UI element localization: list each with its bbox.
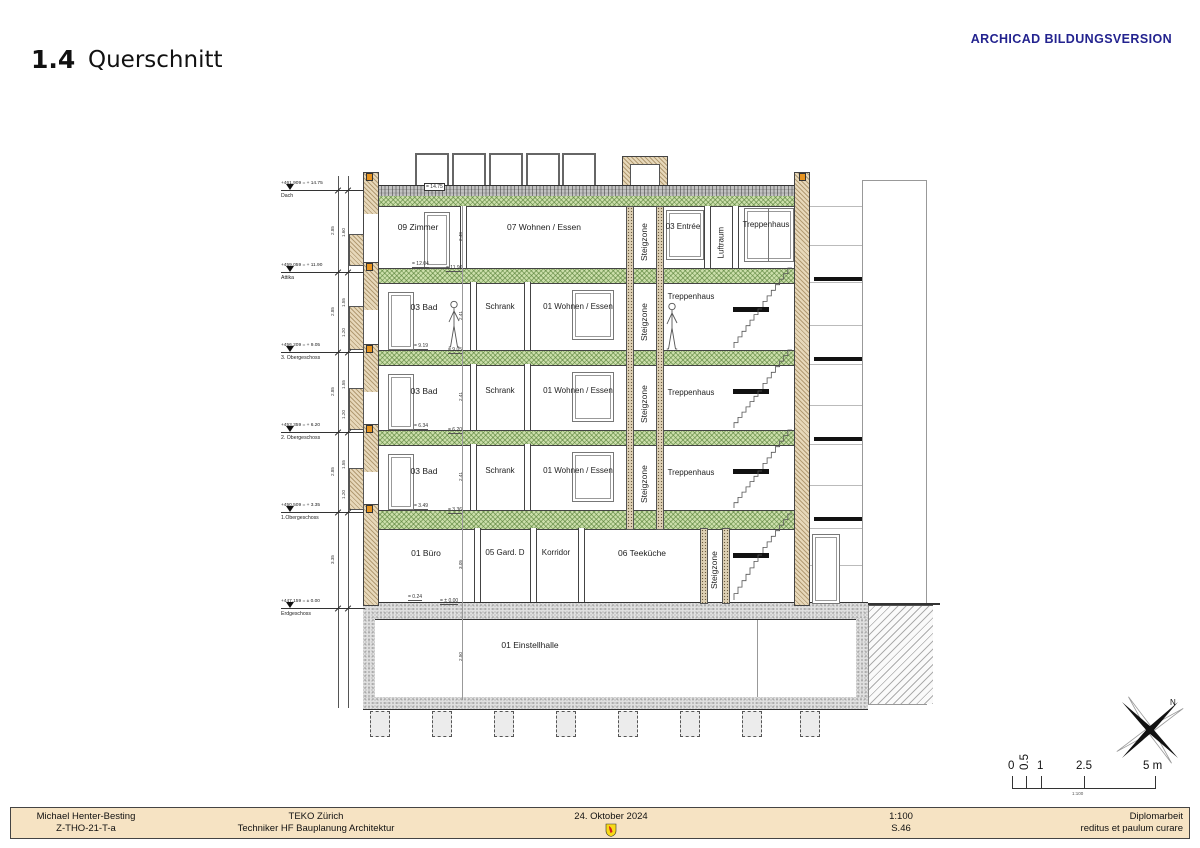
partition-wall [732,206,739,268]
dim-value: 2.85 [330,307,335,316]
dim-value: 1.55 [341,380,346,389]
dim-value: 1.60 [341,228,346,237]
roof-elevation-mark: = 14.75 [424,183,445,191]
room-label: Korridor [533,548,579,557]
roof-skylight [489,153,523,189]
level-name: Erdgeschoss [281,611,311,617]
left-wall-window [363,392,379,424]
foundation-pile [742,711,762,737]
dim-value: 1.20 [341,328,346,337]
door [388,292,414,350]
slab-mark: = ± 0.00 [440,598,458,605]
slab-mark: = 3.36 [448,507,462,514]
slab-mark: = 6.34 [414,423,428,430]
slab-mark: = 0.24 [408,594,422,601]
foundation-pile [618,711,638,737]
room-label: 03 Entrée [660,222,706,231]
shaft-wall [656,206,664,530]
level-name: Attika [281,275,294,281]
left-wall-window [363,310,379,344]
dim-value: 2.48 [458,232,463,241]
level-line [281,190,363,191]
footer-scale: 1:100 [831,811,971,823]
footer-program: Techniker HF Bauplanung Architektur [201,823,431,835]
background-floor-line [808,364,862,365]
shaft-wall [700,528,708,604]
level-name: 2. Obergeschoss [281,435,320,441]
foundation-pile [680,711,700,737]
dim-value: 1.20 [341,410,346,419]
footer-school: TEKO Zürich [201,811,431,823]
room-label: Steigzone [639,213,649,261]
room-label: Treppenhaus [662,388,720,397]
section-drawing: = 14.75 [0,0,1200,800]
window [666,210,704,260]
scale-tick [1084,776,1085,788]
room-label: 07 Wohnen / Essen [464,222,624,232]
room-label: 06 Teeküche [584,548,700,558]
scale-tick [1012,776,1013,788]
earth-hatch [868,604,933,704]
level-name: Dach [281,193,293,199]
dimension-chain [338,176,339,708]
partition-wall [474,528,481,602]
door [388,374,414,430]
room-label: Luftraum [717,215,726,259]
partition-wall [524,364,531,430]
scale-ratio: 1:100 [1072,791,1083,796]
left-wall [363,504,379,606]
window-frame-accent [366,425,373,433]
dim-value: 1.20 [341,490,346,499]
room-label: Treppenhaus [662,468,720,477]
background-floor-line [808,444,862,445]
window-frame-accent [799,173,806,181]
scale-label: 2.5 [1076,760,1092,772]
room-label: Treppenhaus [737,220,795,229]
zurich-shield-icon [605,823,617,837]
basement-column [757,620,758,697]
drawing-sheet: 1.4 Querschnitt ARCHICAD BILDUNGSVERSION… [0,0,1200,848]
level-line [281,352,363,353]
dim-value: 1.55 [341,298,346,307]
level-name: 3. Obergeschoss [281,355,320,361]
window [572,290,614,340]
roof-insulation [365,196,806,207]
room-label: Steigzone [709,541,719,589]
dim-value: 2.41 [458,311,463,320]
partition-wall [470,444,477,510]
foundation-pile [494,711,514,737]
room-label: 01 Einstellhalle [455,640,605,650]
room-label: 01 Büro [378,548,474,558]
ground-line [868,603,940,605]
scale-label: 1 [1037,760,1043,772]
footer-motto: reditus et paulum curare [1031,823,1183,835]
partition-wall [524,282,531,350]
background-slab-bar [814,437,862,441]
footer-author: Michael Henter-Besting [21,811,151,823]
background-floor-line [808,245,862,246]
person-figure [664,302,680,352]
footer-date-block: 24. Oktober 2024 [531,811,691,841]
room-label: 01 Wohnen / Essen [528,386,628,395]
room-label: Treppenhaus [662,292,720,301]
slab-mark: = 3.49 [414,503,428,510]
slab-mark: = 11.90 [446,265,462,272]
dim-value: 1.55 [341,460,346,469]
level-name: 1.Obergeschoss [281,515,319,521]
roof-skylight [562,153,596,189]
slab-mark: = 12.04 [412,261,429,268]
room-label: 03 Bad [378,466,470,476]
room-label: 09 Zimmer [378,222,458,232]
person-figure [446,300,462,350]
foundation-pile [556,711,576,737]
room-label: Steigzone [639,375,649,423]
north-compass: N [1114,694,1186,766]
dim-value: 2.41 [458,392,463,401]
foundation-pile [800,711,820,737]
room-label: Schrank [475,302,525,311]
slab-mark: = 6.20 [448,427,462,434]
background-floor-line [808,405,862,406]
level-line [281,512,363,513]
background-floor-line [808,282,862,283]
dim-value: 2.85 [330,387,335,396]
background-floor-line [808,528,862,529]
window-sash [349,234,364,266]
foundation-pile [370,711,390,737]
window [744,208,794,262]
partition-wall [470,364,477,430]
slab-mark: = 9.19 [414,343,428,350]
basement-floor-slab [363,697,868,710]
partition-wall [530,528,537,602]
door [388,454,414,510]
room-label: Schrank [475,386,525,395]
scale-baseline [1012,788,1156,789]
roof-skylight [452,153,486,189]
left-wall-window [363,472,379,504]
scale-tick [1155,776,1156,788]
room-label: 03 Bad [378,386,470,396]
partition-wall [704,206,711,268]
background-floor-line [808,325,862,326]
scale-label: 0.5 [1019,754,1031,770]
footer-page: S.46 [831,823,971,835]
footer-date: 24. Oktober 2024 [531,811,691,823]
room-label: 01 Wohnen / Essen [528,466,628,475]
window-sash [349,388,364,430]
footer-doc-code: Z-THO-21-T-a [21,823,151,835]
entrance-door [812,534,840,604]
room-label: 05 Gard. D [479,548,531,557]
north-label: N [1170,698,1176,707]
dim-value: 3.05 [458,560,463,569]
dimension-chain [462,206,463,700]
window [572,372,614,422]
window-sash [349,306,364,350]
slab-mark: = 9.05 [448,347,462,354]
basement-wall-left [363,618,375,697]
room-label: Schrank [475,466,525,475]
partition-wall [524,444,531,510]
footer-scale-block: 1:100 S.46 [831,811,971,835]
level-line [281,432,363,433]
roof-skylight [526,153,560,189]
footer-work-type: Diplomarbeit [1031,811,1183,823]
window [572,452,614,502]
room-label: Steigzone [639,455,649,503]
window-frame-accent [366,263,373,271]
room-label: 01 Wohnen / Essen [528,302,628,311]
scale-tick [1026,776,1027,788]
staircase [726,260,798,608]
dim-value: 2.85 [330,467,335,476]
shaft-wall [626,206,634,530]
window-sash [349,468,364,510]
background-slab-bar [814,517,862,521]
partition-wall [470,282,477,350]
left-wall-window [363,214,379,262]
background-slab-bar [814,357,862,361]
level-line [281,272,363,273]
dim-value: 2.41 [458,472,463,481]
scale-label: 0 [1008,760,1014,772]
window-frame-accent [366,173,373,181]
foundation-pile [432,711,452,737]
background-floor-line [808,206,862,207]
door [424,212,450,268]
background-slab-bar [814,277,862,281]
scale-tick [1041,776,1042,788]
window-frame-accent [366,345,373,353]
footer-author-block: Michael Henter-Besting Z-THO-21-T-a [21,811,151,835]
room-label: Steigzone [639,293,649,341]
dim-value: 2.85 [330,226,335,235]
dimension-chain [348,176,349,708]
level-line [281,608,365,609]
basement-wall-right [856,618,868,697]
footer-school-block: TEKO Zürich Techniker HF Bauplanung Arch… [201,811,431,835]
dim-value: 2.50 [458,652,463,661]
partition-wall [578,528,585,602]
background-floor-line [808,485,862,486]
title-block: Michael Henter-Besting Z-THO-21-T-a TEKO… [10,807,1190,839]
dim-value: 3.35 [330,555,335,564]
footer-work-block: Diplomarbeit reditus et paulum curare [1031,811,1183,835]
window-frame-accent [366,505,373,513]
